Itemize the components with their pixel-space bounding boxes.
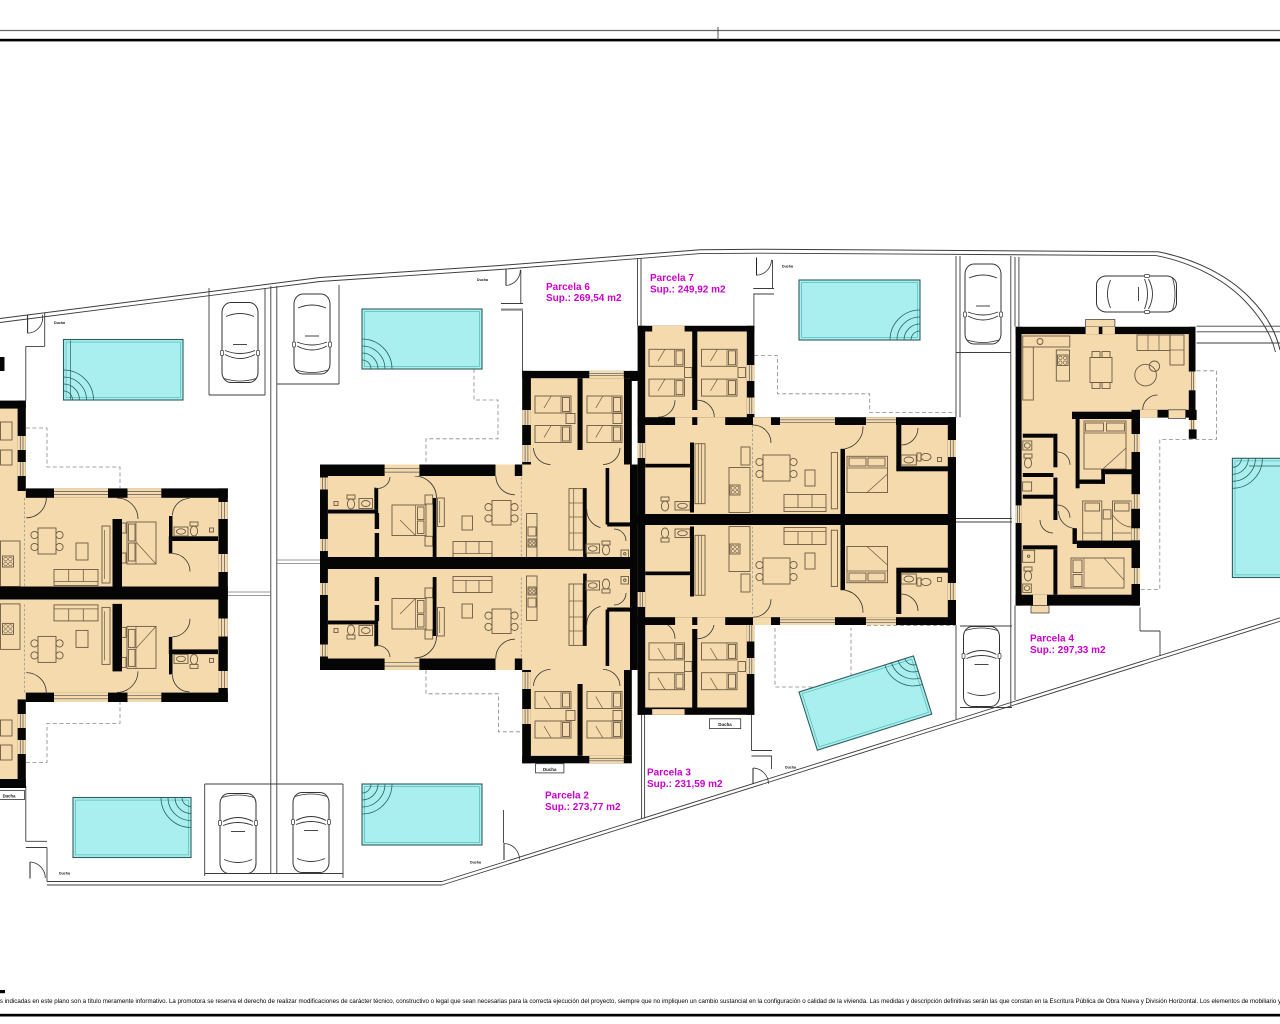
- svg-text:Sup.: 269,54 m2: Sup.: 269,54 m2: [546, 293, 622, 304]
- svg-text:Parcela 7: Parcela 7: [650, 273, 694, 284]
- svg-text:Ducha: Ducha: [3, 793, 16, 798]
- svg-text:Ducha: Ducha: [54, 321, 66, 325]
- svg-text:Las superficies indicadas en e: Las superficies indicadas en este plano …: [0, 998, 1280, 1005]
- svg-text:Ducha: Ducha: [782, 265, 794, 269]
- svg-text:Ducha: Ducha: [470, 861, 482, 865]
- svg-text:Parcela 4: Parcela 4: [1030, 634, 1074, 645]
- svg-text:Sup.: 273,77 m2: Sup.: 273,77 m2: [545, 802, 621, 813]
- svg-text:Sup.: 249,92 m2: Sup.: 249,92 m2: [650, 285, 726, 296]
- svg-text:Parcela 3: Parcela 3: [647, 768, 691, 779]
- svg-text:Ducha: Ducha: [59, 872, 71, 876]
- svg-text:Parcela 6: Parcela 6: [546, 282, 590, 293]
- svg-text:Ducha: Ducha: [543, 767, 557, 772]
- svg-text:Ducha: Ducha: [718, 722, 732, 727]
- svg-text:Sup.: 297,33 m2: Sup.: 297,33 m2: [1030, 645, 1106, 656]
- svg-text:Ducha: Ducha: [785, 766, 797, 770]
- svg-text:Ducha: Ducha: [477, 278, 489, 282]
- svg-text:Sup.: 231,59 m2: Sup.: 231,59 m2: [647, 779, 723, 790]
- svg-text:Parcela 2: Parcela 2: [545, 791, 589, 802]
